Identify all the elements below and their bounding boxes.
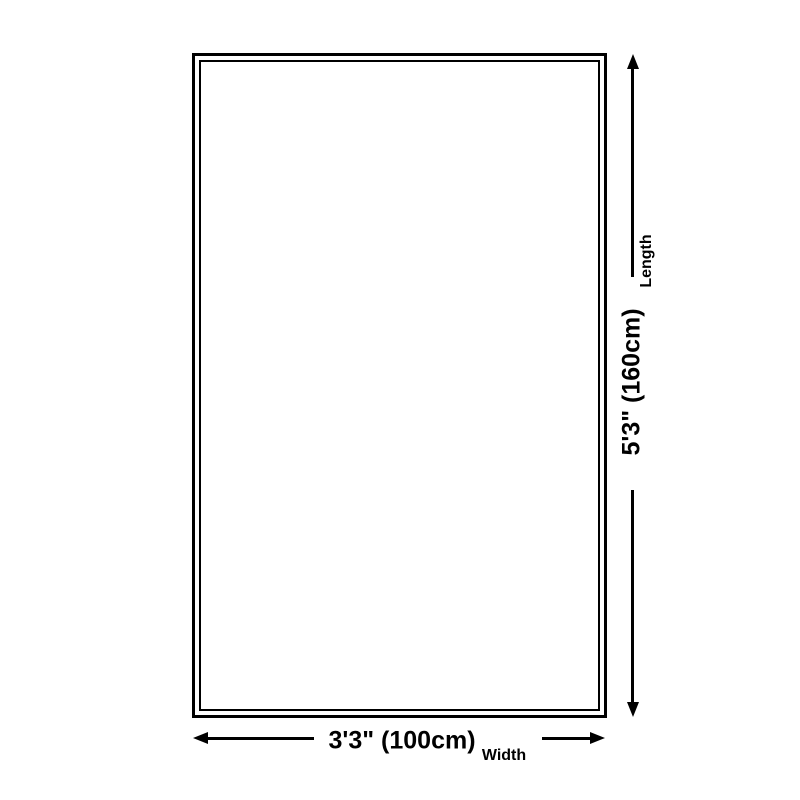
width-arrow-line-left <box>206 737 314 740</box>
width-value: 3'3" (100cm) <box>328 729 475 754</box>
rug-outline <box>192 53 607 718</box>
length-arrow-line-top <box>631 66 634 277</box>
width-arrow-line-right <box>542 737 592 740</box>
length-arrow-down-icon <box>627 702 639 717</box>
rug-inner-outline <box>199 60 600 711</box>
width-arrow-right-icon <box>590 732 605 744</box>
rug-size-diagram: 5'3" (160cm) Length 3'3" (100cm) Width <box>0 0 800 800</box>
length-value: 5'3" (160cm) <box>620 308 645 455</box>
width-label: Width <box>482 748 526 764</box>
length-arrow-line-bottom <box>631 490 634 704</box>
length-label: Length <box>639 234 655 287</box>
